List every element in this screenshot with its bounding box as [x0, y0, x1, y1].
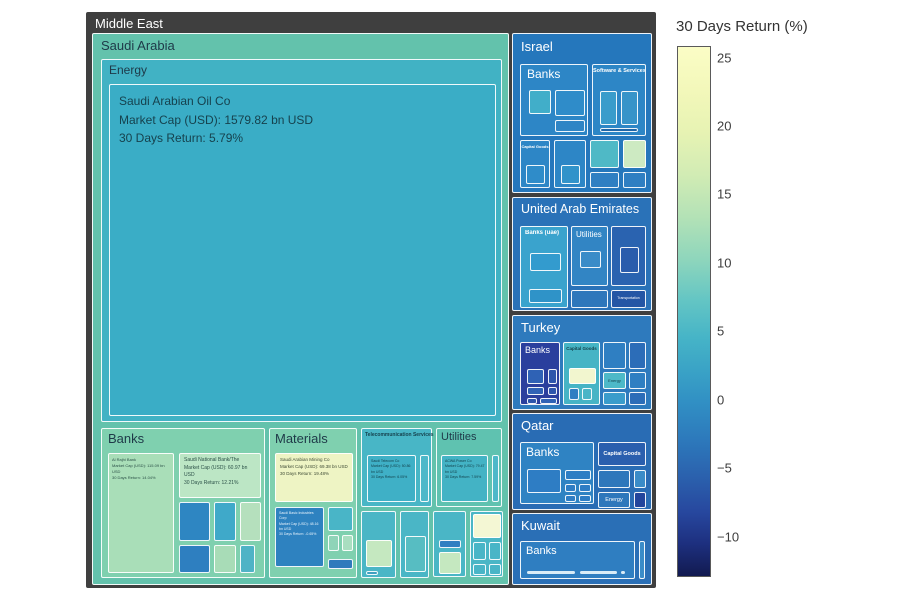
treemap-leaf[interactable]: [328, 507, 353, 531]
colorbar-tick-15: 15: [717, 187, 731, 202]
sector-label-utilities-sa[interactable]: Utilities: [441, 431, 476, 443]
treemap-leaf[interactable]: [529, 90, 551, 114]
treemap-leaf[interactable]: [555, 120, 585, 132]
treemap-leaf[interactable]: [603, 392, 626, 405]
sector-energy-turkey[interactable]: Energy: [603, 372, 626, 389]
country-label-qatar[interactable]: Qatar: [521, 418, 554, 433]
sector-label-banks-kuwait[interactable]: Banks: [526, 545, 557, 557]
country-kuwait[interactable]: Kuwait Banks: [512, 513, 652, 585]
treemap-leaf[interactable]: [366, 540, 392, 567]
leaf-saudi-national-bank[interactable]: Saudi National Bank/The Market Cap (USD)…: [179, 453, 261, 498]
treemap-leaf[interactable]: [473, 564, 486, 575]
leaf-saudi-arabian-oil-co[interactable]: Saudi Arabian Oil Co Market Cap (USD): 1…: [109, 84, 496, 416]
treemap-root-middle-east[interactable]: Middle East Saudi Arabia Energy Saudi Ar…: [86, 12, 656, 588]
treemap-leaf[interactable]: [527, 369, 544, 384]
treemap-leaf[interactable]: [561, 165, 580, 184]
sector-small-4-sa[interactable]: [470, 511, 503, 577]
country-label-israel[interactable]: Israel: [521, 39, 553, 54]
treemap-leaf[interactable]: [579, 495, 591, 502]
leaf-text-aramco: Saudi Arabian Oil Co Market Cap (USD): 1…: [119, 92, 487, 148]
treemap-leaf[interactable]: [629, 342, 646, 369]
sector-label-banks-turkey[interactable]: Banks: [525, 345, 550, 355]
treemap-leaf[interactable]: [569, 388, 579, 400]
treemap-leaf[interactable]: [328, 535, 339, 551]
sector-label-utilities-uae[interactable]: Utilities: [576, 230, 602, 239]
treemap-leaf[interactable]: [598, 470, 630, 488]
treemap-leaf[interactable]: [603, 342, 626, 369]
leaf-text-maaden: Saudi Arabian Mining Co Market Cap (USD)…: [280, 457, 350, 477]
sector-label-software-israel[interactable]: Software & Services: [593, 68, 645, 74]
treemap-leaf[interactable]: [565, 495, 576, 502]
sector-capital-goods-israel[interactable]: Capital Goods: [520, 140, 550, 188]
country-saudi-arabia[interactable]: Saudi Arabia Energy Saudi Arabian Oil Co…: [92, 33, 509, 585]
leaf-text-acwa: ACWA Power Co Market Cap (USD): 79.47 bn…: [445, 459, 485, 480]
sector-energy-qatar[interactable]: Energy: [598, 492, 630, 508]
colorbar-tick-25: 25: [717, 51, 731, 66]
treemap-leaf[interactable]: [639, 541, 645, 579]
sector-label-banks-sa[interactable]: Banks: [108, 431, 144, 446]
sector-small-2-sa[interactable]: [400, 511, 429, 578]
leaf-al-rajhi-bank[interactable]: Al Rajhi Bank Market Cap (USD): 115.09 b…: [108, 453, 174, 573]
sector-label-energy-turkey[interactable]: Energy: [604, 378, 625, 383]
treemap-figure: Middle East Saudi Arabia Energy Saudi Ar…: [0, 0, 900, 600]
sector-utilities-sa[interactable]: Utilities ACWA Power Co Market Cap (USD)…: [436, 428, 502, 507]
treemap-leaf[interactable]: [548, 369, 557, 384]
country-label-uae[interactable]: United Arab Emirates: [521, 202, 639, 216]
treemap-leaf[interactable]: [179, 502, 210, 541]
country-qatar[interactable]: Qatar Banks Capital Goods Energy: [512, 413, 652, 510]
sector-label-telecom-sa[interactable]: Telecommunication Services: [365, 432, 434, 438]
sector-banks-turkey[interactable]: Banks: [520, 342, 560, 405]
treemap-leaf[interactable]: [579, 484, 591, 492]
colorbar-tick-5: 5: [717, 324, 724, 339]
country-label-saudi-arabia[interactable]: Saudi Arabia: [101, 38, 175, 53]
treemap-leaf[interactable]: [600, 128, 638, 132]
treemap-leaf[interactable]: [489, 542, 501, 560]
treemap-leaf[interactable]: [590, 172, 619, 188]
colorbar-tick-m5: −5: [717, 461, 732, 476]
treemap-leaf[interactable]: [439, 552, 461, 574]
treemap-leaf[interactable]: [621, 571, 625, 574]
leaf-saudi-telecom-co[interactable]: Saudi Telecom Co Market Cap (USD): 50.86…: [367, 455, 416, 502]
sector-label-capital-goods-israel[interactable]: Capital Goods: [521, 144, 549, 149]
sector-label-banks-uae[interactable]: Banks (uae): [525, 230, 559, 236]
sector-utilities-uae[interactable]: Utilities: [571, 226, 608, 286]
country-label-kuwait[interactable]: Kuwait: [521, 518, 560, 533]
sector-label-capital-goods-qatar[interactable]: Capital Goods: [599, 451, 645, 457]
sector-banks-qatar[interactable]: Banks: [520, 442, 594, 504]
treemap-leaf[interactable]: [526, 165, 545, 184]
colorbar-tick-10: 10: [717, 256, 731, 271]
sector-label-materials-sa[interactable]: Materials: [275, 431, 328, 446]
treemap-leaf[interactable]: [634, 470, 646, 488]
colorbar-title: 30 Days Return (%): [676, 18, 808, 35]
treemap-leaf[interactable]: [527, 387, 544, 395]
treemap-leaf[interactable]: [328, 559, 353, 569]
leaf-text-stc: Saudi Telecom Co Market Cap (USD): 50.86…: [371, 459, 413, 480]
treemap-leaf[interactable]: [473, 514, 501, 538]
treemap-leaf[interactable]: [620, 247, 639, 273]
treemap-leaf[interactable]: [214, 502, 236, 541]
treemap-leaf[interactable]: [179, 545, 210, 573]
treemap-leaf[interactable]: [582, 388, 592, 400]
sector-small-3-sa[interactable]: [433, 511, 466, 577]
treemap-leaf[interactable]: [600, 91, 617, 125]
treemap-leaf[interactable]: [527, 571, 575, 574]
leaf-saudi-basic-industries[interactable]: Saudi Basic Industries Corp Market Cap (…: [275, 507, 324, 567]
treemap-leaf[interactable]: [530, 253, 561, 271]
leaf-text-snb: Saudi National Bank/The Market Cap (USD)…: [184, 457, 258, 487]
treemap-leaf[interactable]: [214, 545, 236, 573]
treemap-leaf[interactable]: [489, 564, 501, 575]
treemap-leaf[interactable]: [420, 455, 429, 502]
sector-banks-uae[interactable]: Banks (uae): [520, 226, 568, 308]
treemap-leaf[interactable]: [527, 398, 537, 404]
treemap-leaf[interactable]: [555, 90, 585, 116]
sector-capital-goods-qatar[interactable]: Capital Goods: [598, 442, 646, 466]
treemap-leaf[interactable]: [366, 571, 378, 575]
country-israel[interactable]: Israel Banks Software & Services Capital…: [512, 33, 652, 193]
sector-software-israel[interactable]: Software & Services: [592, 64, 646, 136]
treemap-leaf[interactable]: [240, 545, 255, 573]
treemap-leaf[interactable]: [492, 455, 499, 502]
root-label[interactable]: Middle East: [95, 16, 163, 31]
treemap-leaf[interactable]: [629, 372, 646, 389]
treemap-leaf[interactable]: [580, 251, 601, 268]
leaf-saudi-arabian-mining-co[interactable]: Saudi Arabian Mining Co Market Cap (USD)…: [275, 453, 353, 502]
colorbar-tick-m10: −10: [717, 530, 739, 545]
country-label-turkey[interactable]: Turkey: [521, 320, 560, 335]
treemap-leaf[interactable]: [540, 398, 557, 404]
treemap-leaf[interactable]: [527, 469, 561, 493]
colorbar-tick-0: 0: [717, 393, 724, 408]
treemap-leaf[interactable]: [548, 387, 557, 395]
treemap-leaf[interactable]: [571, 290, 608, 308]
sector-materials-sa[interactable]: Materials Saudi Arabian Mining Co Market…: [269, 428, 357, 578]
treemap-leaf[interactable]: [623, 172, 646, 188]
treemap-leaf[interactable]: [569, 368, 596, 384]
sector-banks-israel[interactable]: Banks: [520, 64, 588, 136]
sector-small-uae[interactable]: [611, 226, 646, 286]
treemap-leaf[interactable]: [240, 502, 261, 541]
treemap-leaf[interactable]: [439, 540, 461, 548]
leaf-acwa-power[interactable]: ACWA Power Co Market Cap (USD): 79.47 bn…: [441, 455, 488, 502]
sector-banks-sa[interactable]: Banks Al Rajhi Bank Market Cap (USD): 11…: [101, 428, 265, 578]
treemap-leaf[interactable]: [565, 470, 591, 480]
sector-label-energy-sa[interactable]: Energy: [109, 63, 147, 77]
treemap-leaf[interactable]: [529, 289, 562, 303]
sector-label-banks-qatar[interactable]: Banks: [526, 445, 559, 459]
treemap-leaf[interactable]: [342, 535, 353, 551]
colorbar-tick-20: 20: [717, 119, 731, 134]
treemap-leaf[interactable]: [590, 140, 619, 168]
sector-small-israel[interactable]: [554, 140, 586, 188]
sector-transportation-uae[interactable]: Transportation: [611, 290, 646, 308]
sector-capital-goods-turkey[interactable]: Capital Goods: [563, 342, 600, 405]
sector-label-energy-qatar[interactable]: Energy: [599, 497, 629, 503]
treemap-leaf[interactable]: [473, 542, 486, 560]
treemap-leaf[interactable]: [621, 91, 638, 125]
treemap-leaf[interactable]: [623, 140, 646, 168]
country-turkey[interactable]: Turkey Banks Capital Goods Energy: [512, 315, 652, 410]
treemap-leaf[interactable]: [580, 571, 617, 574]
leaf-text-al-rajhi: Al Rajhi Bank Market Cap (USD): 115.09 b…: [112, 457, 171, 481]
treemap-leaf[interactable]: [405, 536, 426, 572]
sector-label-transportation-uae[interactable]: Transportation: [612, 296, 645, 300]
treemap-leaf[interactable]: [629, 392, 646, 405]
country-uae[interactable]: United Arab Emirates Banks (uae) Utiliti…: [512, 197, 652, 311]
treemap-leaf[interactable]: [565, 484, 576, 492]
sector-energy-sa[interactable]: Energy Saudi Arabian Oil Co Market Cap (…: [101, 59, 502, 422]
sector-banks-kuwait[interactable]: Banks: [520, 541, 635, 579]
treemap-leaf[interactable]: [634, 492, 646, 508]
sector-label-banks-israel[interactable]: Banks: [527, 67, 560, 81]
leaf-text-sabic: Saudi Basic Industries Corp Market Cap (…: [279, 511, 321, 537]
sector-label-capital-goods-turkey[interactable]: Capital Goods: [564, 346, 599, 351]
colorbar-gradient: [677, 46, 711, 577]
sector-small-1-sa[interactable]: [361, 511, 396, 578]
sector-telecom-sa[interactable]: Telecommunication Services Saudi Telecom…: [361, 428, 432, 507]
